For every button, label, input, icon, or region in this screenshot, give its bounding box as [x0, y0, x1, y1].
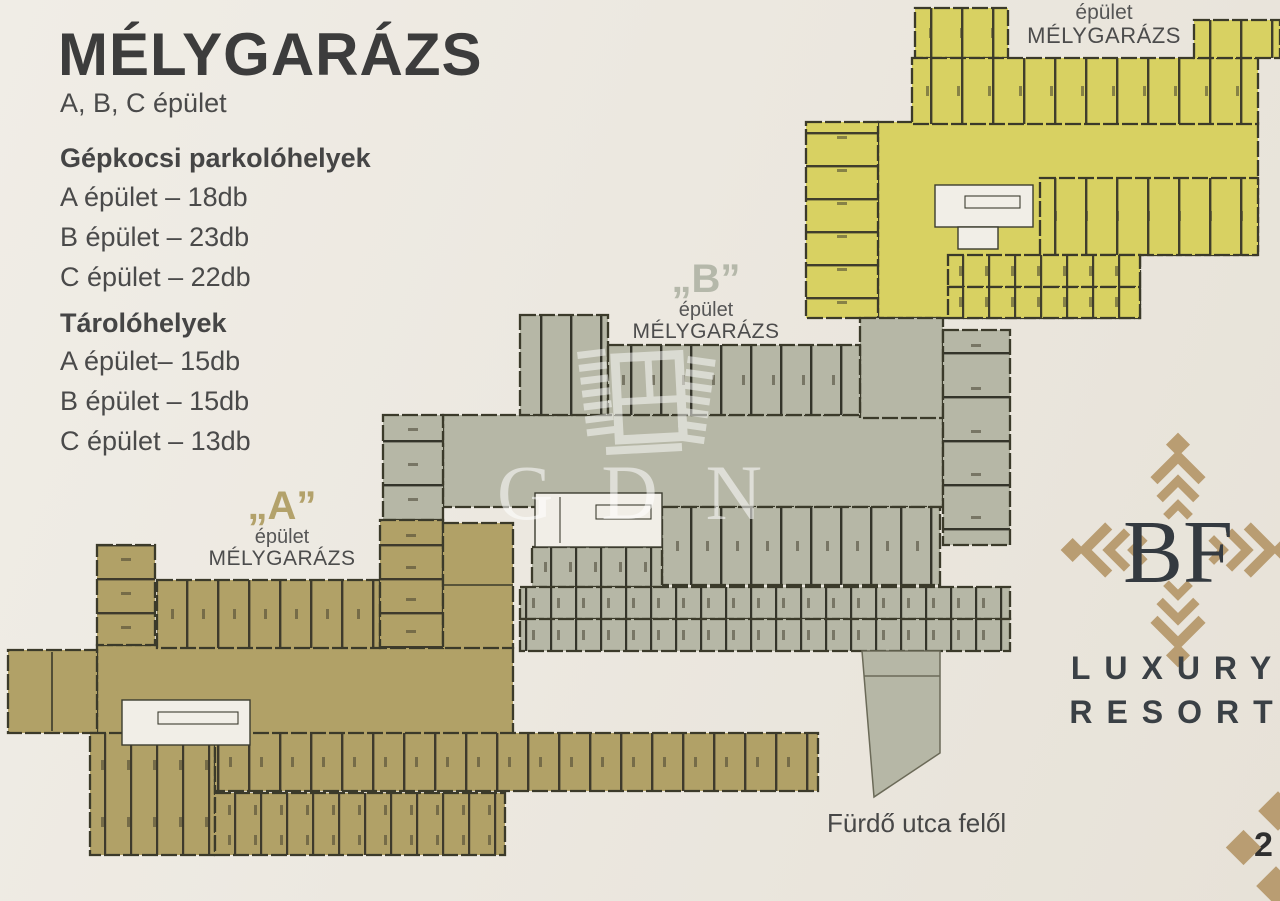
street-ramp	[862, 651, 940, 797]
page-title: MÉLYGARÁZS	[58, 20, 483, 89]
building-c-garage: MÉLYGARÁZS	[1024, 24, 1184, 47]
building-b-garage: MÉLYGARÁZS	[626, 321, 786, 343]
bf-monogram: BF	[1123, 503, 1233, 602]
elevator-core-c	[935, 185, 1033, 227]
label-building-b: „B” épület MÉLYGARÁZS	[626, 258, 786, 343]
bf-logo-ornament: BF	[1061, 433, 1280, 668]
storage-item-a: A épület– 15db	[60, 346, 240, 377]
parking-item-c: C épület – 22db	[60, 262, 251, 293]
label-building-a: „A” épület MÉLYGARÁZS	[202, 485, 362, 570]
street-label: Fürdő utca felől	[827, 808, 1006, 839]
building-a-letter: „A”	[202, 485, 362, 527]
storage-item-b: B épület – 15db	[60, 386, 249, 417]
logo-luxury: LUXURY	[1068, 650, 1280, 687]
elevator-core-a	[122, 700, 250, 745]
building-a-garage: MÉLYGARÁZS	[202, 548, 362, 570]
building-b-epulet: épület	[626, 300, 786, 321]
building-c-plan	[806, 8, 1280, 318]
gdn-watermark-text: GDN	[497, 448, 787, 538]
storage-heading: Tárolóhelyek	[60, 308, 227, 339]
parking-heading: Gépkocsi parkolóhelyek	[60, 143, 371, 174]
building-a-epulet: épület	[202, 527, 362, 548]
page-subtitle: A, B, C épület	[60, 88, 227, 119]
parking-item-a: A épület – 18db	[60, 182, 248, 213]
label-building-c: épület MÉLYGARÁZS	[1024, 2, 1184, 47]
storage-item-c: C épület – 13db	[60, 426, 251, 457]
parking-item-b: B épület – 23db	[60, 222, 249, 253]
building-b-letter: „B”	[626, 258, 786, 300]
brochure-page: BF MÉLYGARÁZS A, B, C épület Gépkocsi pa…	[0, 0, 1280, 901]
building-c-epulet: épület	[1024, 2, 1184, 24]
logo-resort: RESORT	[1068, 694, 1280, 731]
